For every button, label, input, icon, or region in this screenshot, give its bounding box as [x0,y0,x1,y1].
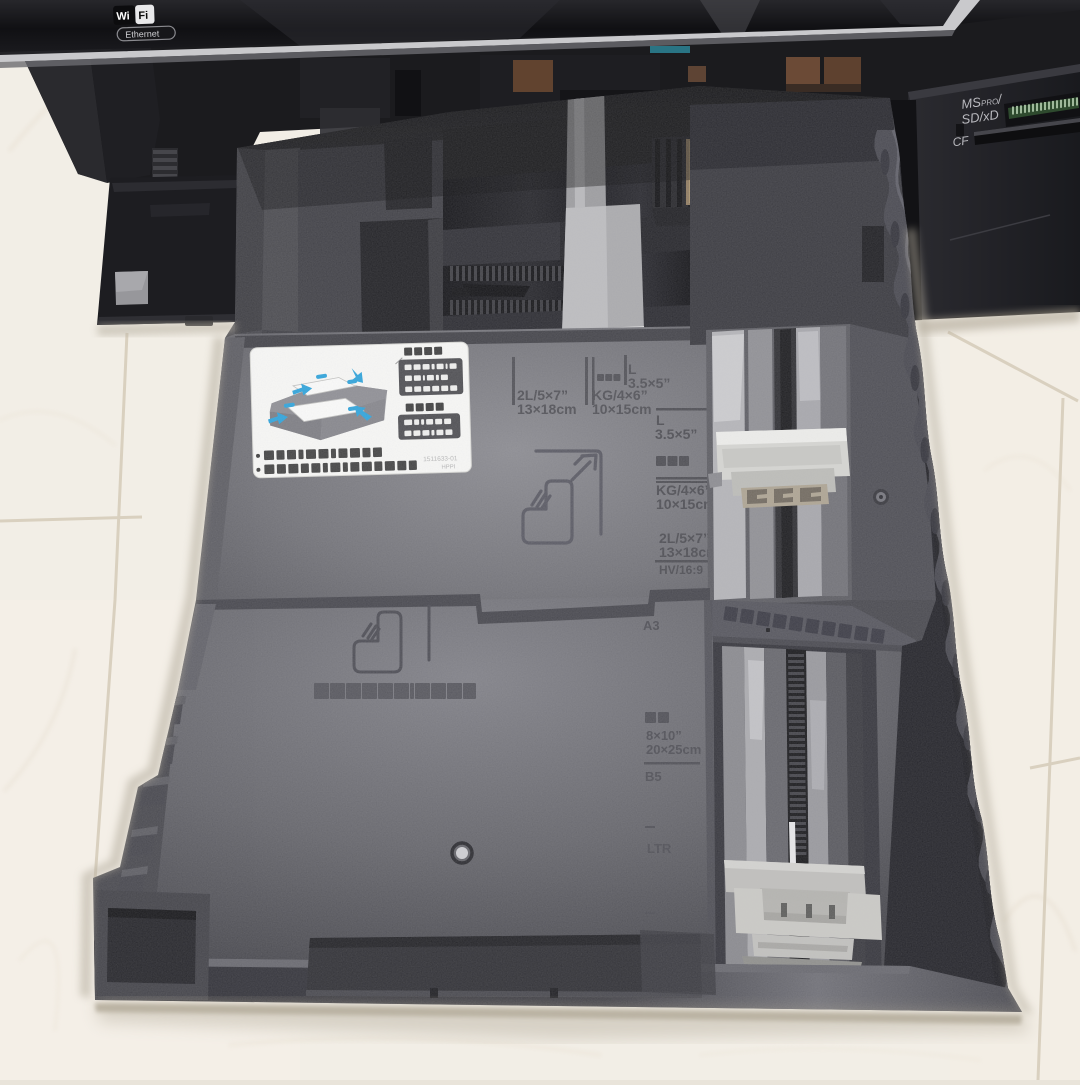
svg-text:Ethernet: Ethernet [125,29,160,40]
svg-text:Fi: Fi [138,10,148,22]
svg-text:Wi: Wi [116,10,130,22]
